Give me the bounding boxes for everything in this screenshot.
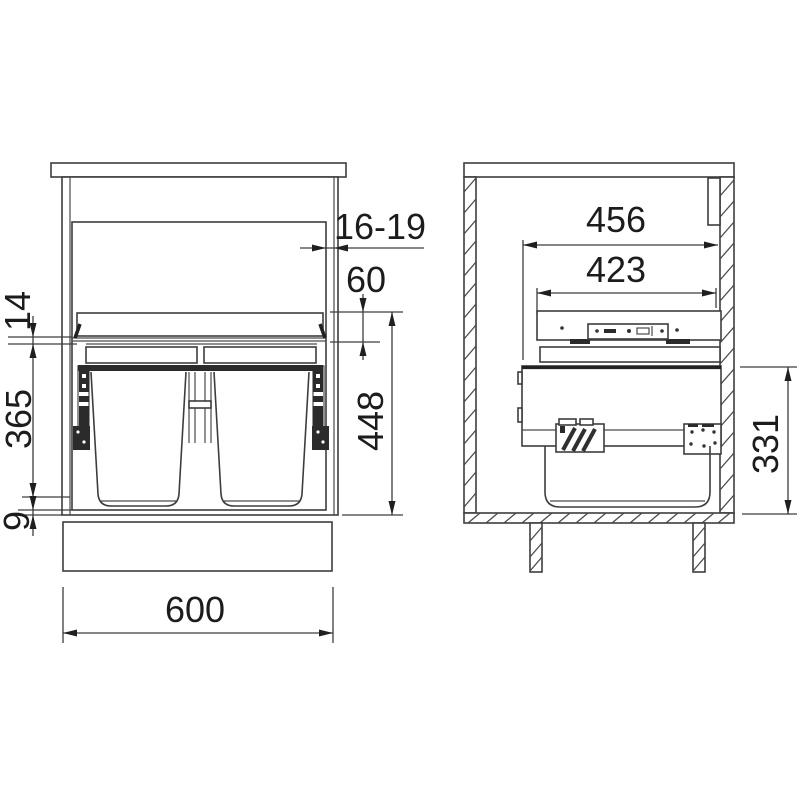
- dim-unit-height: 331: [740, 367, 797, 514]
- dim-frame-depth-label: 423: [586, 249, 646, 290]
- dim-unit-height-label: 331: [745, 414, 786, 474]
- side-bucket: [545, 446, 710, 507]
- front-right-bin-lid: [204, 347, 316, 363]
- front-frame-rail: [78, 365, 323, 371]
- dim-door-reveal-label: 16-19: [334, 206, 426, 247]
- dim-width-label: 600: [165, 589, 225, 630]
- side-countertop: [464, 163, 734, 177]
- front-lid: [77, 313, 323, 336]
- technical-drawing-page: 16-19 60 14 365 9: [0, 0, 800, 800]
- dim-bin-height-label: 365: [0, 389, 39, 449]
- dim-frame-depth: 423: [537, 249, 716, 313]
- front-countertop: [51, 163, 346, 177]
- side-stretcher-rail: [708, 178, 720, 225]
- dim-lid-frame-label: 14: [0, 291, 38, 331]
- side-right-latch: [684, 424, 721, 454]
- side-bin-rim: [540, 347, 720, 362]
- dim-inner-height-label: 448: [350, 391, 391, 451]
- side-mounting-frame: [537, 311, 721, 344]
- waste-bin-cabinet-drawing: 16-19 60 14 365 9: [0, 0, 800, 800]
- front-left-bin-lid: [86, 347, 197, 363]
- side-left-latch: [556, 419, 604, 452]
- side-back-wall: [720, 177, 734, 513]
- front-plinth: [63, 522, 332, 571]
- dim-width: 600: [63, 587, 333, 643]
- dim-lid-height-label: 60: [346, 259, 386, 300]
- dim-depth-label: 456: [586, 199, 646, 240]
- dim-bottom-gap-label: 9: [0, 511, 37, 531]
- front-view: [51, 163, 346, 571]
